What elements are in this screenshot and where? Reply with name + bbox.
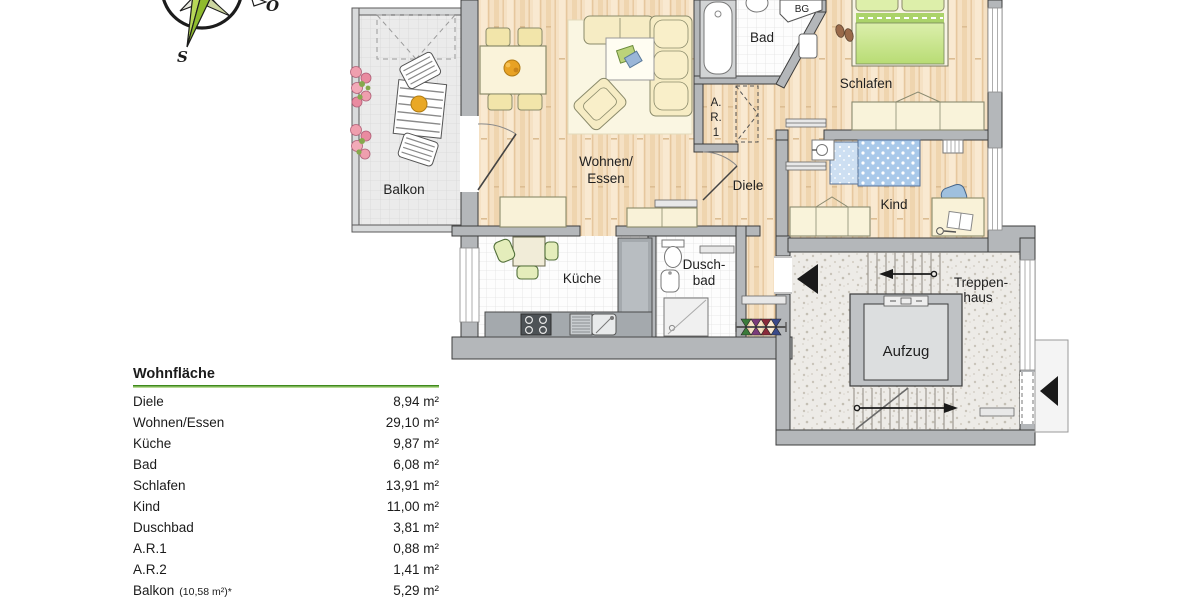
area-table-rule	[133, 385, 439, 388]
elevator	[850, 294, 962, 386]
fruit-bowl	[504, 60, 520, 76]
area-row: Diele 8,94 m²	[133, 391, 439, 412]
area-row: Duschbad 3,81 m²	[133, 517, 439, 538]
building-entry-landing	[1035, 340, 1068, 432]
label-schlafen: Schlafen	[840, 76, 893, 91]
kind-washbasin	[812, 140, 834, 160]
label-ar1-1: 1	[713, 127, 719, 139]
area-row: Balkon (10,58 m²)* 5,29 m²	[133, 580, 439, 600]
compass-south-label: S	[177, 48, 188, 66]
schlafen-window	[988, 8, 1002, 92]
label-treppenhaus-1: Treppen-	[954, 275, 1008, 290]
bathtub	[700, 0, 736, 78]
towel-radiator	[799, 34, 817, 58]
label-kueche: Küche	[563, 271, 601, 286]
area-row: Wohnen/Essen 29,10 m²	[133, 412, 439, 433]
area-table: Wohnfläche Diele 8,94 m² Wohnen/Essen 29…	[133, 366, 439, 600]
area-row-label: Diele	[133, 391, 164, 412]
label-duschbad-2: bad	[693, 273, 716, 288]
shower-sink	[661, 270, 679, 292]
treppenhaus-window	[1020, 260, 1035, 370]
kind-window	[988, 148, 1002, 230]
area-row: Schlafen 13,91 m²	[133, 475, 439, 496]
desk-wohnen	[500, 197, 566, 227]
area-row-value: 1,41 m²	[393, 559, 439, 580]
wohnen-radiator	[655, 200, 697, 207]
diele-radiator	[742, 296, 786, 304]
area-row-value: 9,87 m²	[393, 433, 439, 454]
area-table-title: Wohnfläche	[133, 366, 439, 385]
label-ar1-a: A.	[711, 97, 722, 109]
area-row-note: (10,58 m²)*	[179, 582, 232, 600]
label-wohnen-2: Essen	[587, 171, 625, 186]
area-row-value: 3,81 m²	[393, 517, 439, 538]
area-row: Bad 6,08 m²	[133, 454, 439, 475]
area-row-value: 11,00 m²	[387, 496, 439, 517]
label-duschbad-1: Dusch-	[683, 257, 726, 272]
sofa-group	[568, 16, 692, 134]
apartment-entrance-opening	[774, 256, 792, 294]
floorplan-page: S O Balkon Wohnen/ Essen Bad BG Schlafen…	[0, 0, 1200, 600]
area-row: A.R.1 0,88 m²	[133, 538, 439, 559]
label-kind: Kind	[880, 197, 907, 212]
compass-rose: S O	[162, 0, 279, 66]
area-row: Kind 11,00 m²	[133, 496, 439, 517]
kind-shelf	[943, 140, 963, 153]
kind-bed	[830, 140, 920, 186]
kitchen-window	[460, 248, 479, 322]
area-row-label: Schlafen	[133, 475, 186, 496]
area-row-value: 29,10 m²	[386, 412, 439, 433]
duschbad-radiator	[700, 246, 734, 253]
label-diele: Diele	[733, 178, 764, 193]
area-row: Küche 9,87 m²	[133, 433, 439, 454]
label-aufzug: Aufzug	[883, 343, 930, 360]
schlafen-sliding-door	[786, 119, 826, 127]
label-wohnen-1: Wohnen/	[579, 154, 633, 169]
area-row-label: A.R.1	[133, 538, 167, 559]
area-row-value: 6,08 m²	[393, 454, 439, 475]
sideboard	[627, 208, 697, 227]
area-row-label: Küche	[133, 433, 171, 454]
stove	[521, 314, 551, 335]
area-row-label: Kind	[133, 496, 160, 517]
treppenhaus-radiator	[980, 408, 1014, 416]
area-row-value: 0,88 m²	[393, 538, 439, 559]
area-row-value: 8,94 m²	[393, 391, 439, 412]
kitchen-sink	[570, 314, 616, 335]
label-treppenhaus-2: haus	[963, 290, 993, 305]
area-row-label: Balkon	[133, 580, 174, 600]
compass-east-label: O	[266, 0, 279, 15]
label-ar1-r: R.	[710, 112, 722, 124]
area-row-value: 13,91 m²	[386, 475, 439, 496]
shower	[664, 298, 708, 336]
area-row: A.R.2 1,41 m²	[133, 559, 439, 580]
label-bg: BG	[795, 4, 810, 15]
area-row-label: Wohnen/Essen	[133, 412, 224, 433]
label-balkon: Balkon	[383, 182, 424, 197]
double-bed	[852, 0, 948, 66]
coffee-table	[606, 38, 654, 80]
label-bad: Bad	[750, 30, 774, 45]
area-row-label: Duschbad	[133, 517, 194, 538]
treppenhaus-dashed-opening	[1020, 372, 1035, 424]
area-row-label: A.R.2	[133, 559, 167, 580]
room-balkon	[351, 8, 466, 232]
area-row-value: 5,29 m²	[393, 580, 439, 600]
kind-sliding-door	[786, 162, 826, 170]
area-row-label: Bad	[133, 454, 157, 475]
